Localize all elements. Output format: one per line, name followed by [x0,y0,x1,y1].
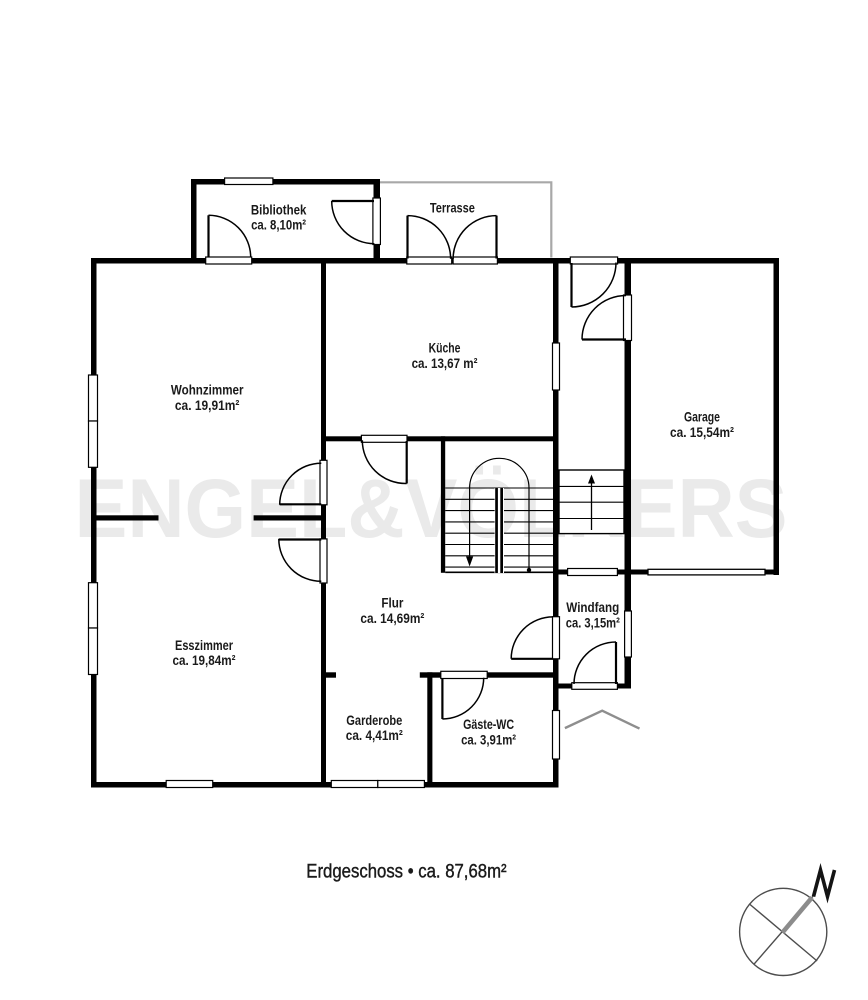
svg-text:ca. 19,84m²: ca. 19,84m² [173,653,236,669]
svg-text:Erdgeschoss • ca. 87,68m²: Erdgeschoss • ca. 87,68m² [306,861,506,882]
svg-text:Flur: Flur [381,596,403,612]
svg-text:Küche: Küche [429,341,461,357]
svg-text:Windfang: Windfang [566,600,619,616]
svg-text:Bibliothek: Bibliothek [251,202,307,218]
svg-text:ca. 13,67 m²: ca. 13,67 m² [412,356,478,372]
svg-text:ca. 14,69m²: ca. 14,69m² [360,611,424,627]
svg-text:ca. 3,15m²: ca. 3,15m² [566,616,620,632]
svg-text:ca. 8,10m²: ca. 8,10m² [251,218,306,234]
svg-text:Garderobe: Garderobe [346,713,402,729]
svg-text:ENGEL&VÖLKERS: ENGEL&VÖLKERS [75,462,788,555]
svg-text:Esszimmer: Esszimmer [175,638,233,654]
svg-text:Wohnzimmer: Wohnzimmer [171,383,244,399]
svg-text:ca. 19,91m²: ca. 19,91m² [175,398,240,414]
svg-text:Terrasse: Terrasse [430,201,475,217]
svg-text:Gäste-WC: Gäste-WC [463,717,514,733]
svg-text:ca. 3,91m²: ca. 3,91m² [461,732,516,748]
svg-text:Garage: Garage [684,410,720,426]
svg-text:ca. 15,54m²: ca. 15,54m² [670,425,734,441]
svg-text:ca. 4,41m²: ca. 4,41m² [346,728,403,744]
